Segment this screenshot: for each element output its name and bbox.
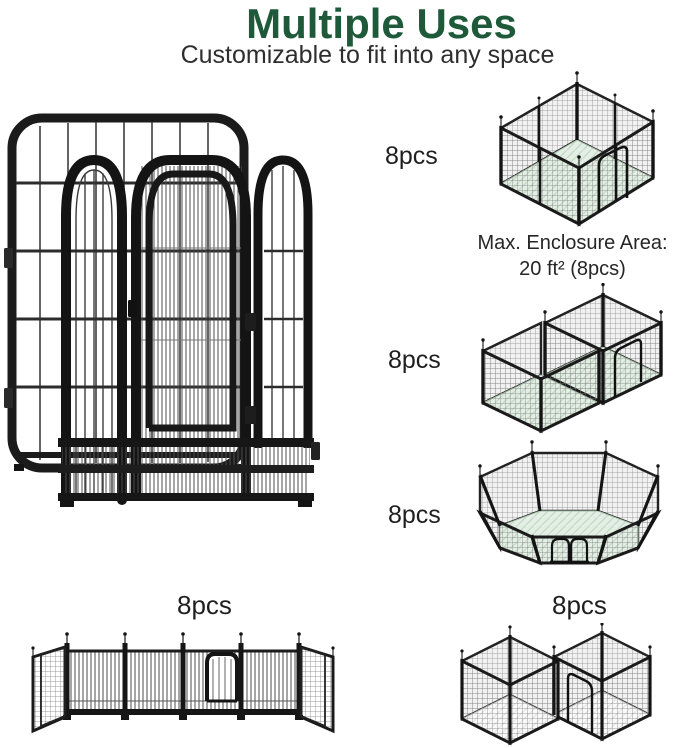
door-latch-icon [128,300,137,317]
octagon-enclosure-illustration [462,437,677,582]
product-infographic: Multiple Uses Customizable to fit into a… [0,0,679,748]
fence-panel-illustration [0,108,330,508]
pcs-label-square: 8pcs [385,142,438,171]
enclosure-area-note-line2: 20 ft² (8pcs) [455,256,679,282]
pcs-label-straight: 8pcs [177,590,232,621]
hinge-icon [245,406,256,424]
hinge-icon [245,313,256,331]
page-subtitle: Customizable to fit into any space [56,41,679,70]
enclosure-area-note: Max. Enclosure Area: 20 ft² (8pcs) [455,230,679,282]
pcs-label-lshape: 8pcs [388,346,441,375]
wall [532,453,606,511]
pcs-label-zigzag: 8pcs [552,590,607,621]
enclosure-area-note-line1: Max. Enclosure Area: [455,230,679,256]
hinge-icon [4,248,13,268]
hinge-icon [311,442,320,460]
straight-fence-illustration [25,621,345,736]
end-panel-right [301,646,335,731]
square-enclosure-illustration [487,70,667,230]
end-panel-left [31,646,65,731]
hinge-icon [4,388,13,408]
gate-door [207,654,237,701]
pcs-label-octagon: 8pcs [388,501,441,530]
l-shape-enclosure-illustration [455,283,675,441]
right-arch [258,160,308,448]
zigzag-fence-illustration [452,623,667,748]
bottom-rails [58,438,320,507]
